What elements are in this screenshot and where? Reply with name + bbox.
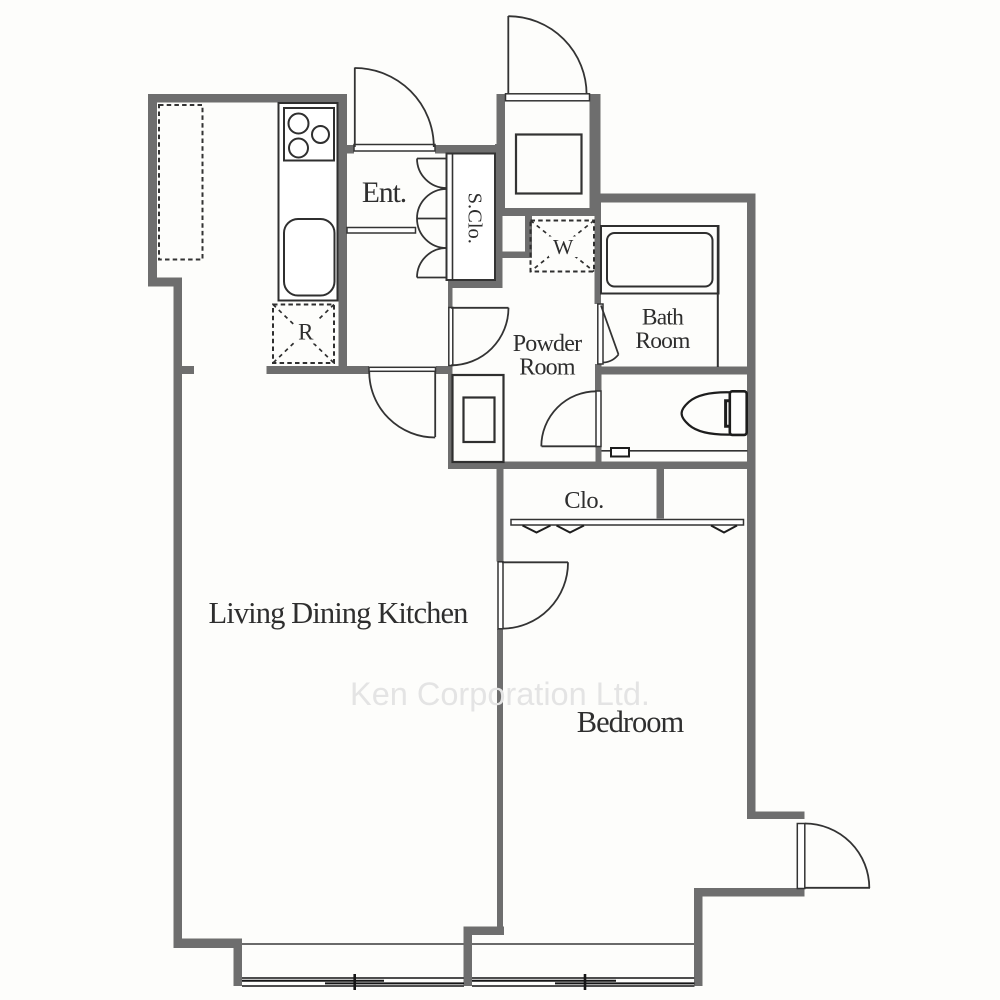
svg-text:Bedroom: Bedroom [577, 705, 685, 739]
svg-text:Living Dining Kitchen: Living Dining Kitchen [209, 596, 469, 630]
svg-text:Room: Room [635, 328, 690, 354]
svg-text:W: W [553, 235, 574, 259]
svg-text:Room: Room [519, 355, 576, 381]
svg-text:R: R [298, 320, 314, 345]
svg-text:Ent.: Ent. [362, 177, 406, 209]
svg-text:Bath: Bath [642, 305, 684, 331]
svg-text:Clo.: Clo. [564, 487, 604, 514]
svg-text:Powder: Powder [513, 331, 582, 357]
svg-text:S.Clo.: S.Clo. [464, 193, 486, 244]
